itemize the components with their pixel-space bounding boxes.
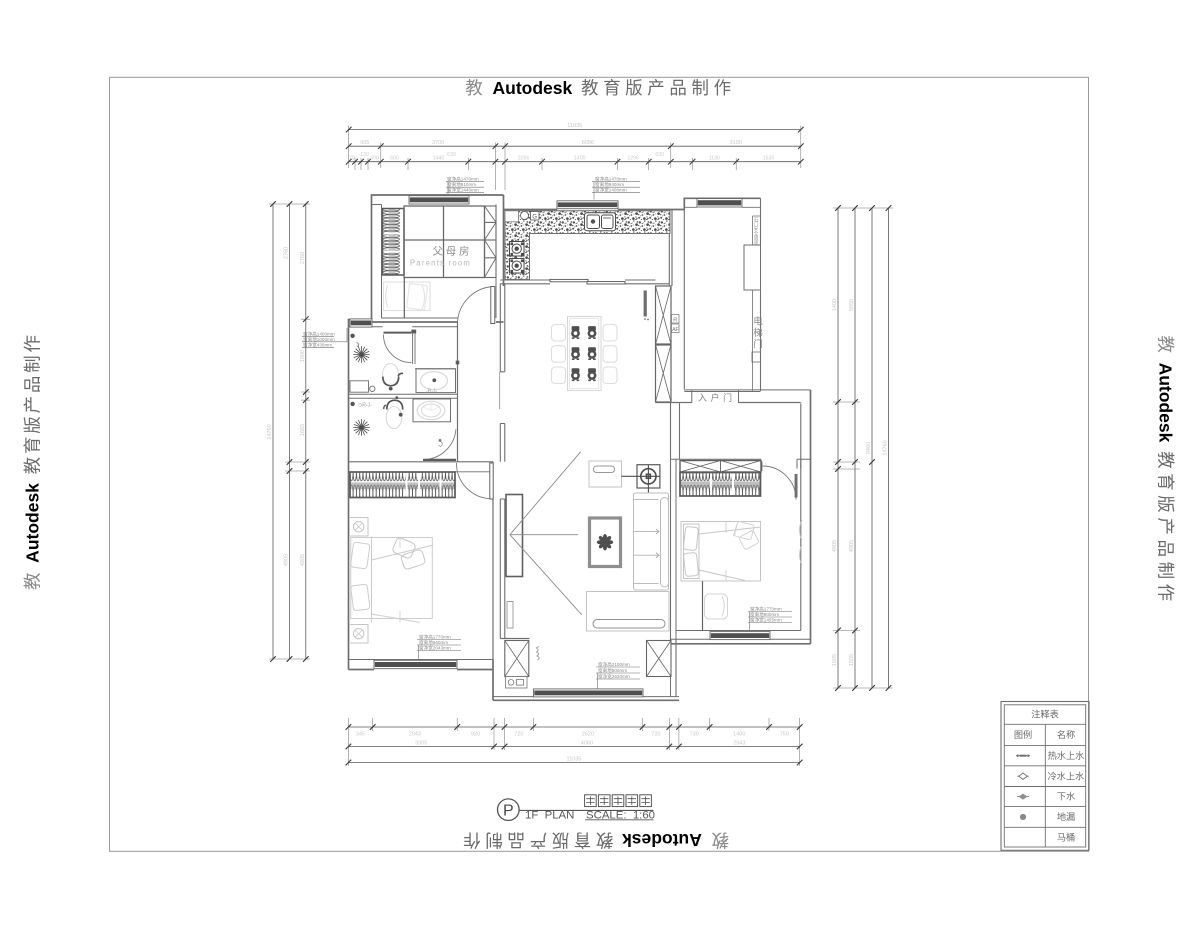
svg-text:1400: 1400 (574, 155, 586, 161)
svg-text:窗净宽2043mm: 窗净宽2043mm (419, 645, 451, 652)
svg-text:窗净宽430mm: 窗净宽430mm (303, 341, 332, 348)
svg-text:Parents room: Parents room (410, 259, 471, 268)
svg-text:11035: 11035 (567, 756, 582, 762)
svg-text:720: 720 (651, 732, 660, 738)
svg-text:AF: AF (672, 327, 678, 333)
svg-text:1F PLAN: 1F PLAN (525, 810, 574, 822)
svg-text:5950: 5950 (849, 299, 855, 311)
svg-text:1530: 1530 (763, 155, 775, 161)
svg-text:冷水上水: 冷水上水 (1048, 770, 1085, 781)
svg-text:1505: 1505 (832, 654, 838, 666)
svg-text:图例: 图例 (1014, 729, 1032, 740)
svg-text:2760: 2760 (284, 247, 290, 259)
svg-text:14760: 14760 (883, 440, 889, 455)
svg-text:600: 600 (390, 155, 399, 161)
svg-text:4905: 4905 (284, 554, 290, 566)
svg-text:窗净宽1400mm: 窗净宽1400mm (595, 187, 627, 194)
svg-text:注释表: 注释表 (1031, 709, 1059, 720)
svg-text:300: 300 (370, 155, 379, 161)
svg-text:6056: 6056 (582, 140, 594, 146)
svg-text:电梯门: 电梯门 (751, 315, 763, 350)
svg-text:345: 345 (356, 732, 365, 738)
svg-text:1505: 1505 (849, 654, 855, 666)
svg-text:G: G (532, 214, 537, 220)
svg-text:马桶: 马桶 (1057, 832, 1075, 843)
svg-text:4905: 4905 (832, 540, 838, 552)
svg-text:1130: 1130 (709, 155, 720, 161)
svg-text:4060: 4060 (581, 740, 593, 746)
svg-text:下水: 下水 (1057, 791, 1075, 802)
svg-text:130: 130 (360, 152, 369, 158)
svg-text:窗离地500mm: 窗离地500mm (598, 667, 627, 674)
svg-text:4905: 4905 (300, 554, 306, 566)
svg-text:P: P (503, 803, 514, 820)
svg-text:630: 630 (447, 152, 456, 158)
svg-text:3700: 3700 (432, 140, 444, 146)
svg-text:70: 70 (349, 155, 355, 161)
svg-text:920: 920 (471, 732, 480, 738)
svg-text:窗净宽1440mm: 窗净宽1440mm (447, 187, 479, 194)
svg-text:3305: 3305 (415, 740, 427, 746)
svg-text:窗净高2100mm: 窗净高2100mm (598, 661, 630, 668)
svg-text:父母房: 父母房 (433, 245, 470, 258)
svg-text:地漏: 地漏 (1057, 811, 1075, 822)
svg-text:1665: 1665 (300, 424, 306, 436)
svg-text:⊙R-J-: ⊙R-J- (358, 402, 372, 408)
svg-text:2620: 2620 (582, 732, 594, 738)
svg-text:1440: 1440 (433, 155, 445, 161)
svg-text:SCALE: 1:60: SCALE: 1:60 (586, 810, 655, 822)
svg-text:1400: 1400 (733, 732, 745, 738)
svg-text:630: 630 (655, 152, 664, 158)
svg-text:1296: 1296 (627, 155, 639, 161)
svg-text:3100: 3100 (730, 140, 742, 146)
svg-text:R: R (673, 318, 677, 324)
svg-text:2760: 2760 (300, 252, 306, 264)
svg-text:窗净宽1455mm: 窗净宽1455mm (750, 617, 782, 624)
svg-text:2943: 2943 (733, 740, 745, 746)
svg-text:1800: 1800 (300, 350, 306, 362)
svg-text:-R-J-: -R-J- (426, 389, 437, 395)
svg-text:750: 750 (780, 732, 789, 738)
svg-text:3266: 3266 (518, 155, 530, 161)
svg-text:石门安全通道: 石门安全通道 (753, 217, 759, 246)
svg-text:入户门: 入户门 (698, 392, 732, 403)
svg-text:905: 905 (360, 140, 369, 146)
svg-text:8460: 8460 (866, 442, 872, 454)
svg-text:2043: 2043 (409, 732, 421, 738)
svg-text:730: 730 (690, 732, 699, 738)
svg-text:720: 720 (514, 732, 523, 738)
svg-text:名称: 名称 (1057, 729, 1075, 740)
svg-text:14760: 14760 (267, 424, 273, 439)
svg-text:11035: 11035 (567, 123, 582, 129)
svg-text:1400: 1400 (832, 299, 838, 311)
svg-text:热水上水: 热水上水 (1048, 750, 1085, 761)
svg-text:窗净宽2620mm: 窗净宽2620mm (598, 673, 630, 680)
svg-text:4905: 4905 (849, 540, 855, 552)
